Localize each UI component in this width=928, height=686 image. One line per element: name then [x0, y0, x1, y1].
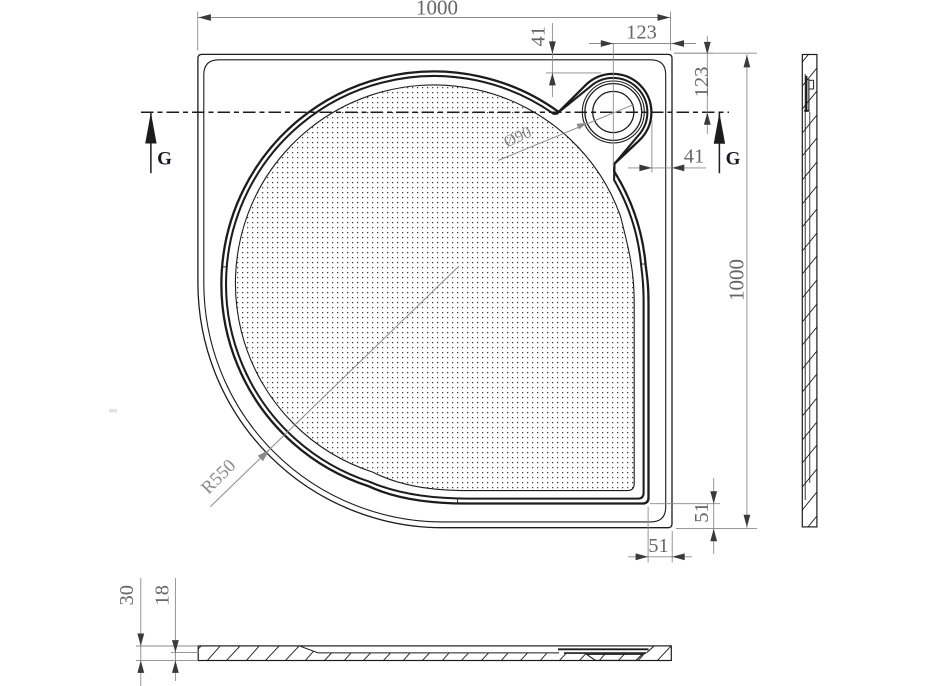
svg-text:1000: 1000 — [725, 259, 749, 301]
svg-text:G: G — [726, 149, 741, 170]
svg-text:18: 18 — [152, 585, 174, 606]
svg-text:51: 51 — [648, 535, 669, 557]
svg-text:41: 41 — [528, 26, 550, 47]
svg-text:51: 51 — [691, 502, 713, 523]
svg-text:123: 123 — [626, 22, 657, 44]
svg-text:1000: 1000 — [416, 0, 458, 19]
svg-text:123: 123 — [691, 67, 713, 98]
svg-text:30: 30 — [116, 585, 138, 606]
svg-text:41: 41 — [684, 146, 705, 168]
svg-text:G: G — [157, 149, 172, 170]
